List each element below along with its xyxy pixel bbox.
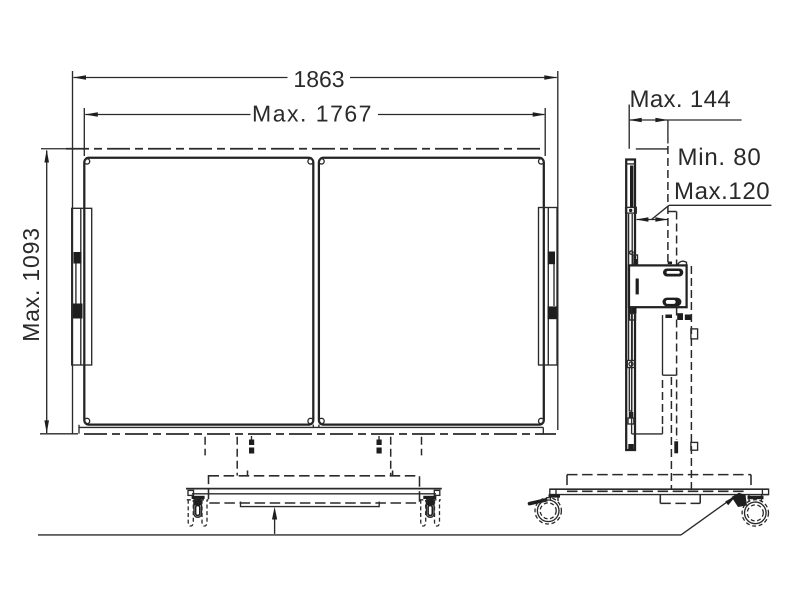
- svg-text:Max. 1093: Max. 1093: [18, 227, 44, 342]
- svg-text:Min. 80: Min. 80: [677, 144, 761, 171]
- svg-text:Max. 144: Max. 144: [629, 86, 731, 113]
- svg-text:1863: 1863: [293, 66, 344, 92]
- svg-text:Max.120: Max.120: [674, 178, 770, 205]
- svg-text:Max. 1767: Max. 1767: [252, 100, 373, 126]
